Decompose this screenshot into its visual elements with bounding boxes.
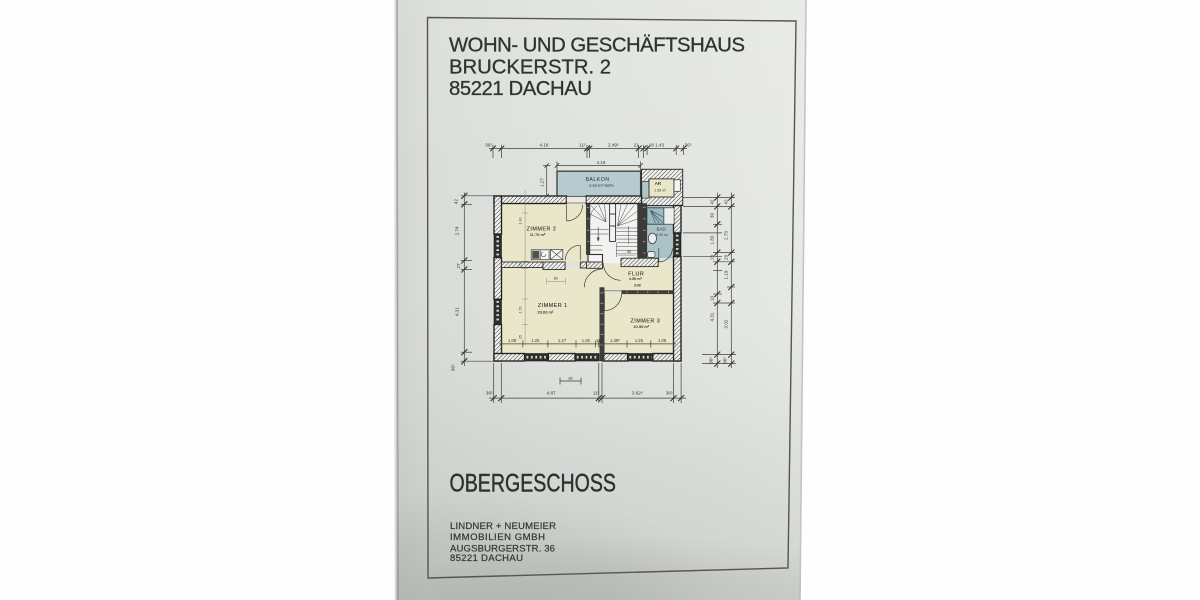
svg-text:AR: AR: [655, 181, 662, 186]
svg-text:42: 42: [454, 199, 459, 205]
svg-text:86: 86: [627, 250, 631, 254]
svg-text:4.87: 4.87: [547, 391, 556, 396]
svg-text:27: 27: [456, 263, 461, 269]
svg-text:1.26: 1.26: [635, 338, 644, 343]
svg-text:25: 25: [519, 263, 523, 267]
svg-text:18 1.43: 18 1.43: [649, 143, 665, 148]
svg-text:OBERGESCHOSS: OBERGESCHOSS: [450, 470, 617, 498]
svg-text:1.83: 1.83: [710, 235, 715, 244]
svg-text:2.74: 2.74: [455, 226, 460, 235]
svg-text:LINDNER + NEUMEIER: LINDNER + NEUMEIER: [450, 521, 556, 532]
svg-text:6.90 m²: 6.90 m²: [656, 233, 669, 237]
svg-text:1.26: 1.26: [531, 338, 540, 343]
svg-text:1.58 m²: 1.58 m²: [654, 188, 667, 192]
svg-text:11.75 m²: 11.75 m²: [530, 232, 546, 237]
svg-text:BAD: BAD: [656, 226, 665, 231]
svg-text:20.83 m²: 20.83 m²: [538, 309, 554, 314]
svg-text:IMMOBILIEN GMBH: IMMOBILIEN GMBH: [450, 532, 545, 543]
svg-text:WOHN- UND GESCHÄFTSHAUS: WOHN- UND GESCHÄFTSHAUS: [449, 35, 745, 57]
svg-text:2.73: 2.73: [724, 231, 729, 240]
svg-text:42: 42: [724, 199, 729, 205]
svg-text:1.26: 1.26: [582, 338, 591, 343]
svg-text:4.31: 4.31: [455, 307, 460, 316]
svg-text:28: 28: [724, 255, 729, 261]
svg-text:28: 28: [710, 254, 715, 260]
svg-text:42: 42: [710, 199, 715, 205]
svg-text:1.19: 1.19: [724, 270, 729, 279]
svg-text:3.98: 3.98: [634, 284, 641, 288]
svg-text:1.08: 1.08: [658, 338, 667, 343]
svg-text:1.40: 1.40: [519, 218, 523, 225]
svg-text:ZIMMER 1: ZIMMER 1: [538, 303, 568, 309]
svg-text:2.64 m²+50%: 2.64 m²+50%: [589, 183, 614, 188]
svg-text:30: 30: [710, 213, 715, 219]
svg-text:BRUCKERSTR. 2: BRUCKERSTR. 2: [449, 56, 611, 78]
svg-text:4.16: 4.16: [597, 160, 606, 165]
svg-text:1.08: 1.08: [508, 338, 517, 343]
svg-text:BALKON: BALKON: [585, 177, 609, 183]
svg-text:1.76: 1.76: [519, 307, 523, 314]
svg-text:21: 21: [634, 143, 640, 148]
svg-text:86: 86: [569, 376, 573, 380]
svg-text:4.31: 4.31: [710, 312, 715, 321]
svg-text:85221 DACHAU: 85221 DACHAU: [449, 78, 592, 100]
svg-text:85221 DACHAU: 85221 DACHAU: [450, 553, 523, 564]
svg-text:25: 25: [519, 335, 523, 339]
svg-text:10: 10: [710, 296, 715, 302]
svg-text:1.27: 1.27: [558, 338, 567, 343]
svg-text:4.36 m²: 4.36 m²: [629, 277, 643, 281]
svg-text:10.95 m²: 10.95 m²: [633, 324, 649, 329]
svg-text:4.18: 4.18: [540, 143, 549, 148]
svg-text:1.27: 1.27: [540, 178, 545, 187]
svg-text:86: 86: [554, 276, 558, 280]
svg-text:3.02: 3.02: [724, 319, 729, 328]
